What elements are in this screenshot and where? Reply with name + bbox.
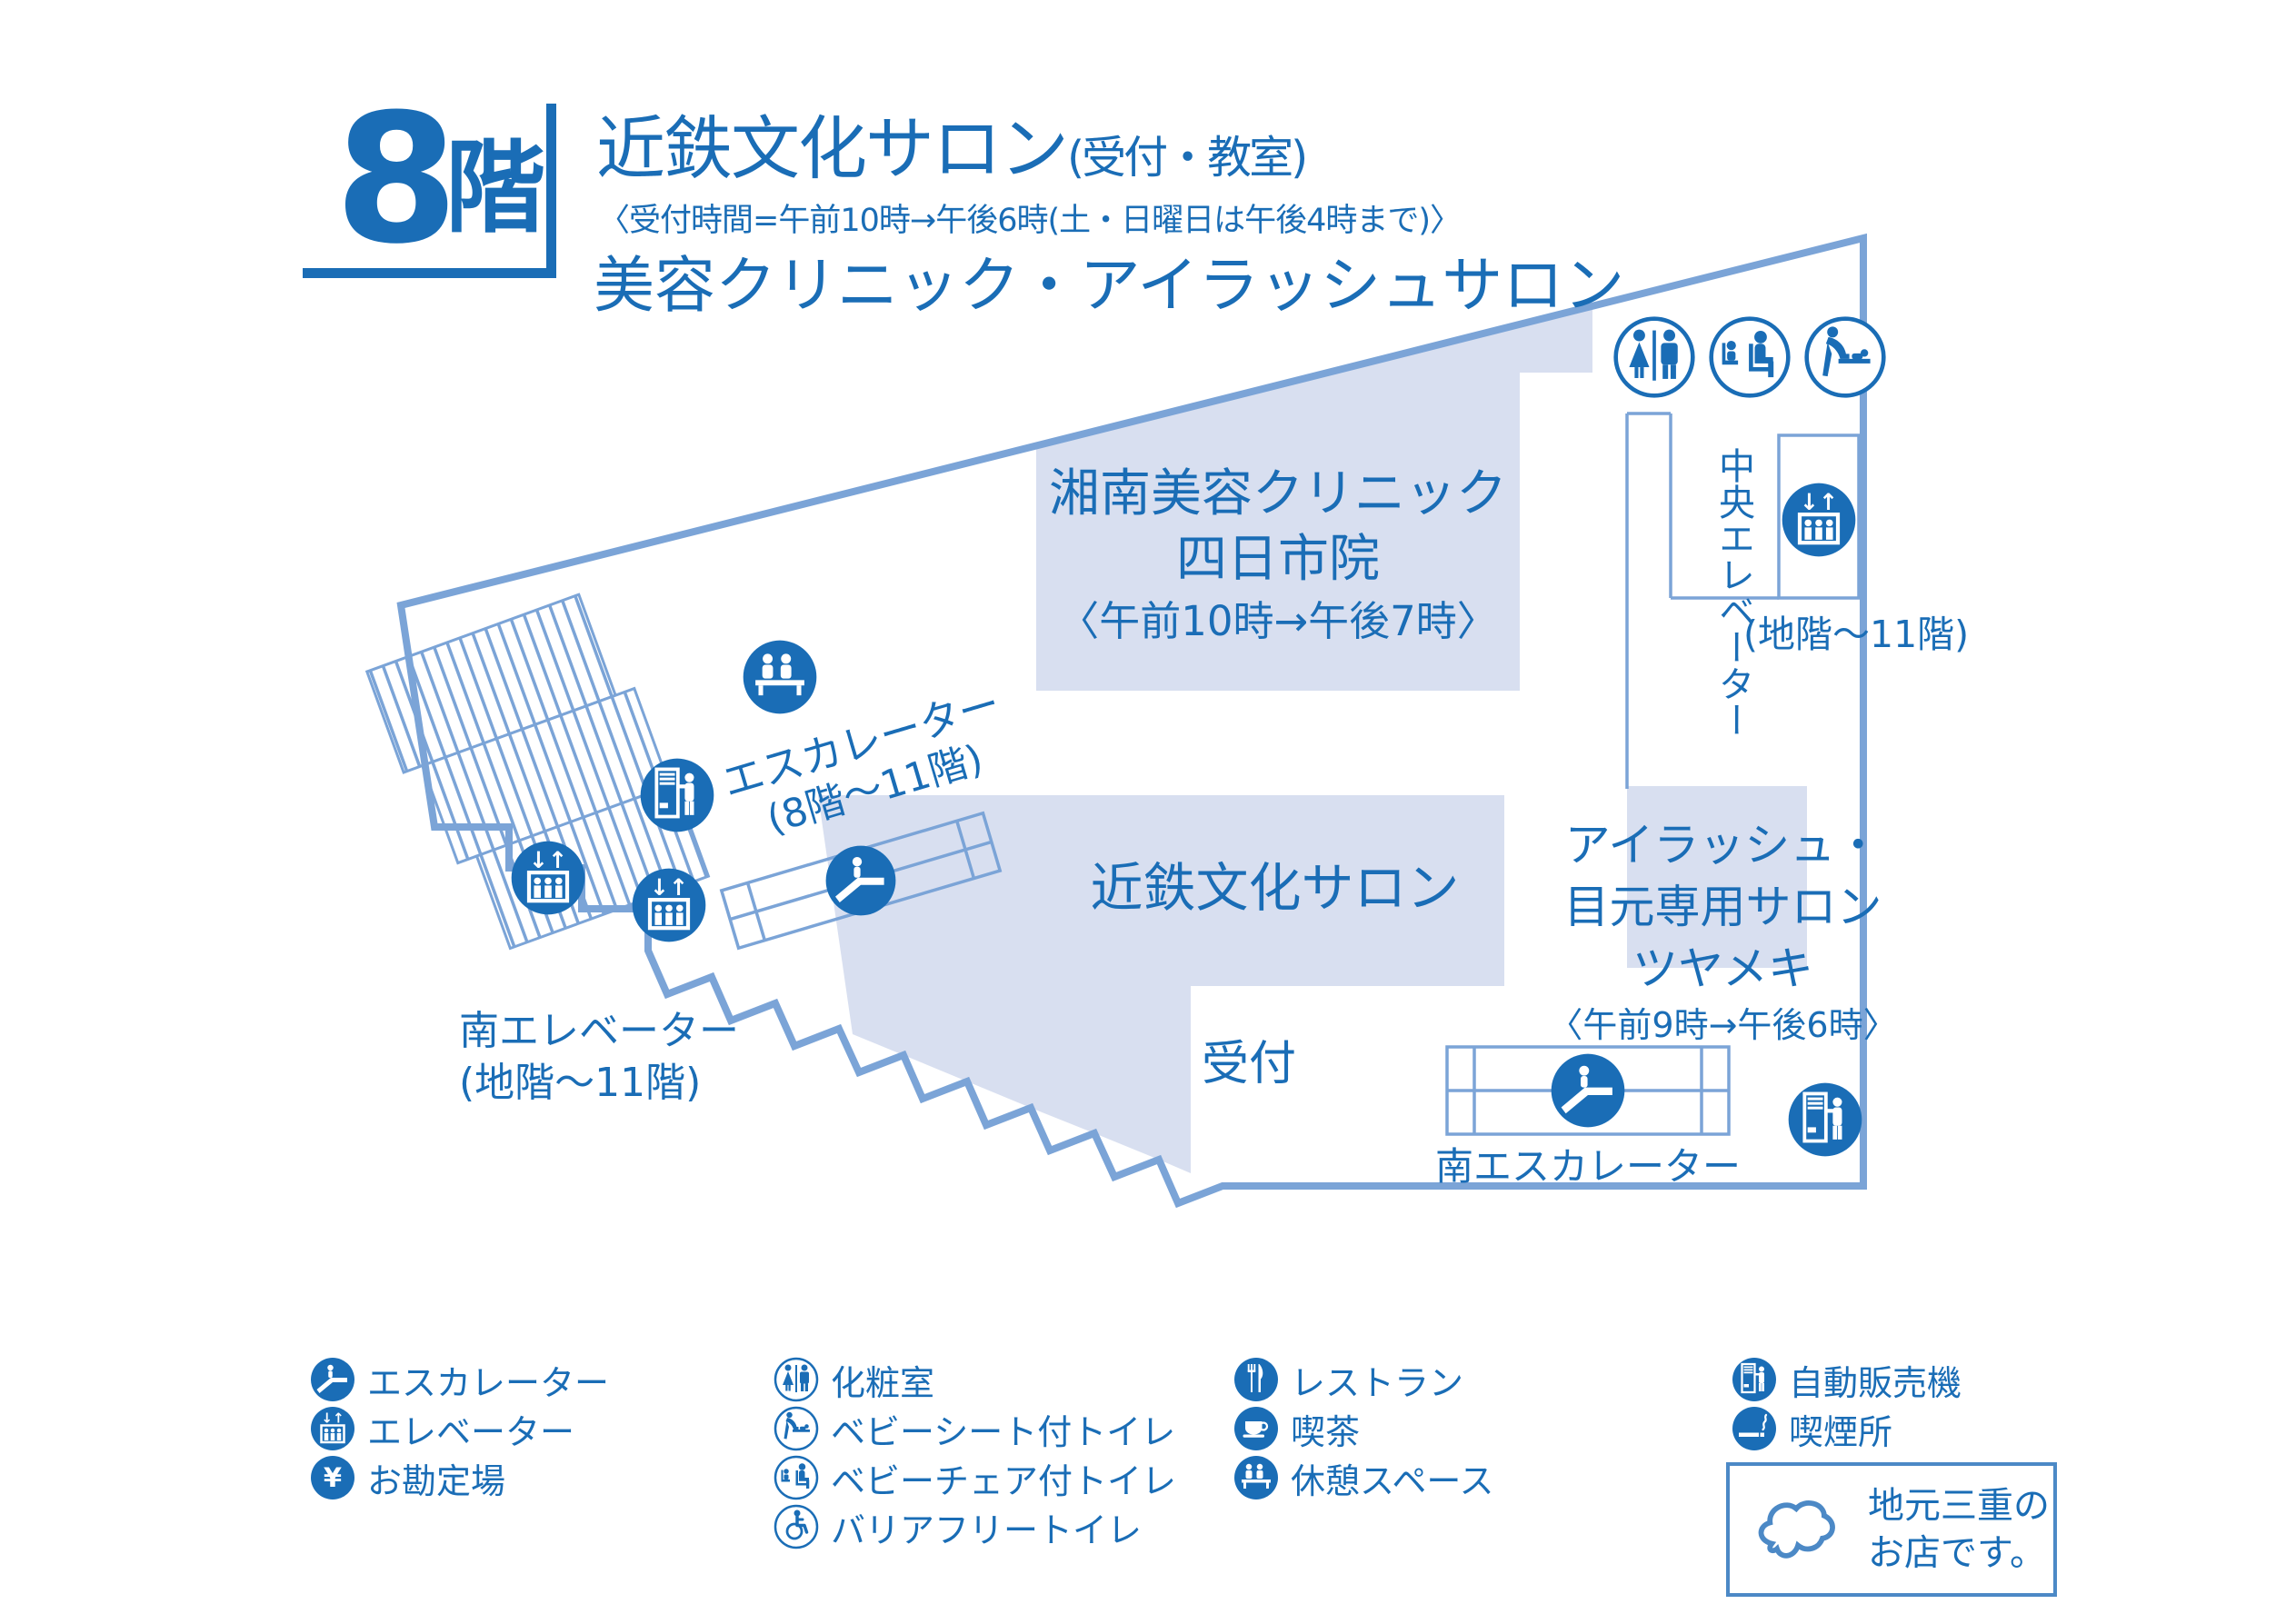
south-elevator-line-1: 南エレベーター [459, 1005, 739, 1057]
floor-number: 8 [334, 91, 458, 269]
eyelash-line-3: ツヤメキ [1548, 938, 1898, 1000]
elevator-icon [310, 1406, 355, 1451]
shonan-clinic-hours: 〈午前10時→午後7時〉 [1036, 593, 1520, 651]
baby-sheet-toilet-icon [774, 1406, 819, 1451]
shonan-clinic-label: 湘南美容クリニック 四日市院 〈午前10時→午後7時〉 [1036, 462, 1520, 651]
cashier-icon [310, 1455, 355, 1500]
eyelash-line-1: アイラッシュ・ [1548, 814, 1898, 876]
central-elevator-floors: (地階〜11階) [1743, 603, 1969, 658]
eyelash-salon-label: アイラッシュ・ 目元専用サロン ツヤメキ 〈午前9時→午後6時〉 [1548, 814, 1898, 1051]
vending-machine-icon [1732, 1357, 1777, 1402]
mie-local-shop-box: 地元三重の お店です。 [1726, 1462, 2057, 1597]
shonan-clinic-name-1: 湘南美容クリニック [1036, 462, 1520, 527]
central-elevator-icon [1782, 483, 1856, 557]
escalator-icon [826, 846, 896, 916]
legend-label: エスカレーター [367, 1355, 609, 1405]
legend-item-restaurant: レストラン [1233, 1357, 1463, 1402]
legend-item-escalator: エスカレーター [310, 1357, 609, 1402]
barrier-free-toilet-icon [774, 1504, 819, 1549]
south-elevator-line-2: (地階〜11階) [459, 1057, 739, 1109]
mie-prefecture-icon [1746, 1489, 1853, 1577]
smoking-area-icon [1732, 1406, 1777, 1451]
shonan-clinic-name-2: 四日市院 [1036, 527, 1520, 593]
legend-item-barrier-free: バリアフリートイレ [774, 1504, 1142, 1549]
legend-label: ベビーチェア付トイレ [831, 1453, 1176, 1503]
restroom-icon [1616, 319, 1693, 396]
header-title-line: 近鉄文化サロン(受付・教室) [596, 111, 1305, 187]
cafe-icon [1233, 1406, 1279, 1451]
legend-item-cafe: 喫茶 [1233, 1406, 1360, 1451]
eyelash-line-2: 目元専用サロン [1548, 876, 1898, 938]
legend-item-rest-space: 休憩スペース [1233, 1455, 1493, 1500]
floor-bracket-horizontal [303, 268, 556, 278]
baby-chair-toilet-icon [1712, 319, 1789, 396]
legend-item-restroom: 化粧室 [774, 1357, 934, 1402]
legend-label: ベビーシート付トイレ [831, 1404, 1175, 1454]
legend-label: 自動販売機 [1789, 1355, 1962, 1405]
legend-item-baby-chair: ベビーチェア付トイレ [774, 1455, 1176, 1500]
legend-item-baby-sheet: ベビーシート付トイレ [774, 1406, 1175, 1451]
baby-chair-toilet-icon [774, 1455, 819, 1500]
legend-item-cashier: お勘定場 [310, 1455, 505, 1500]
legend-label: エレベーター [367, 1404, 574, 1454]
legend-label: 喫茶 [1291, 1404, 1360, 1454]
legend-item-smoking: 喫煙所 [1732, 1406, 1892, 1451]
eyelash-hours: 〈午前9時→午後6時〉 [1548, 1000, 1898, 1051]
rest-space-icon [744, 641, 817, 714]
mie-box-line-1: 地元三重の [1868, 1482, 2050, 1529]
elevator-icon [633, 869, 706, 942]
escalator-icon [310, 1357, 355, 1402]
legend-item-vending: 自動販売機 [1732, 1357, 1962, 1402]
restroom-icon [774, 1357, 819, 1402]
legend-label: 喫煙所 [1789, 1404, 1892, 1454]
legend-label: 休憩スペース [1291, 1453, 1493, 1503]
culture-salon-label: 近鉄文化サロン [1045, 845, 1504, 922]
rest-space-icon [1233, 1455, 1279, 1500]
floor-guide-page: ↓↑ ¥ [0, 0, 2296, 1624]
legend-item-elevator: エレベーター [310, 1406, 574, 1451]
vending-machine-icon [1789, 1083, 1862, 1157]
floor-bracket-vertical [546, 104, 556, 278]
south-escalator-icon [1552, 1054, 1625, 1128]
floor-unit: 階 [445, 138, 545, 238]
page-title: 近鉄文化サロン [596, 108, 1067, 189]
mie-box-line-2: お店です。 [1868, 1529, 2050, 1577]
legend-label: レストラン [1291, 1355, 1463, 1405]
mie-box-text: 地元三重の お店です。 [1868, 1482, 2050, 1577]
reception-hours: 〈受付時間=午前10時→午後6時(土・日曜日は午後4時まで)〉 [598, 194, 1461, 241]
baby-sheet-toilet-icon [1807, 319, 1884, 396]
elevator-icon [512, 842, 585, 915]
page-subtitle: 美容クリニック・アイラッシュサロン [594, 236, 1624, 324]
south-elevator-label: 南エレベーター (地階〜11階) [459, 1005, 739, 1109]
legend-label: バリアフリートイレ [831, 1502, 1142, 1552]
legend-label: お勘定場 [367, 1453, 505, 1503]
page-title-note: (受付・教室) [1067, 132, 1305, 184]
reception-label: 受付 [1202, 1025, 1296, 1093]
central-elevator-label: 中央エレベーター [1707, 447, 1760, 756]
legend-label: 化粧室 [831, 1355, 934, 1405]
restaurant-icon [1233, 1357, 1279, 1402]
south-escalator-label: 南エスカレーター [1424, 1136, 1752, 1191]
